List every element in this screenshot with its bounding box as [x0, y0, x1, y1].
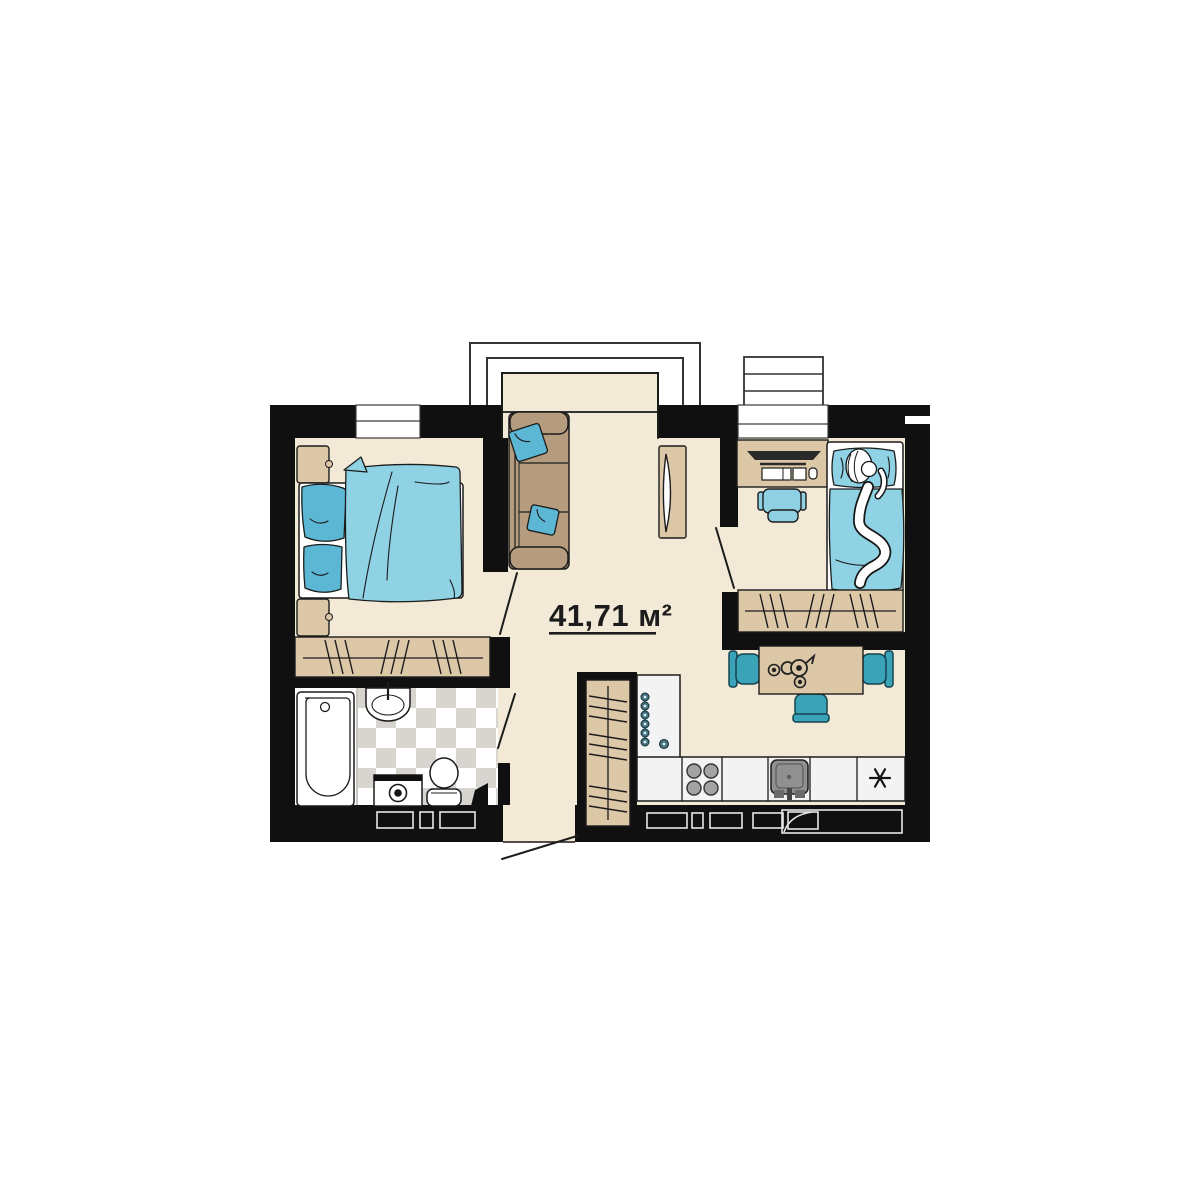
person-head: [862, 462, 877, 477]
washing-machine: [374, 775, 422, 806]
tv-unit: [659, 446, 686, 538]
balcony-door: [738, 405, 828, 438]
mouse: [809, 468, 817, 479]
balcony-slab: [905, 416, 930, 424]
floorplan-page: 41,71 м²: [0, 0, 1200, 1200]
bed-pillow: [302, 484, 347, 541]
keypad: [793, 468, 806, 480]
dining-chair-left: [729, 651, 760, 687]
desk: [737, 440, 828, 487]
bedroom-1: [295, 446, 490, 677]
wardrobe-bedroom2: [738, 590, 903, 632]
dining-chair-right: [862, 651, 893, 687]
monitor: [747, 451, 821, 460]
dining-chair-bottom: [793, 694, 829, 722]
bathroom: [295, 682, 498, 806]
bed-blanket: [345, 464, 462, 601]
single-bed: [827, 442, 904, 593]
area-label: 41,71 м²: [549, 598, 672, 633]
ladder-frame: [744, 357, 823, 408]
nightstand-knob: [326, 614, 333, 621]
sink-drainer: [774, 790, 784, 798]
wardrobe-bedroom1: [295, 637, 490, 677]
nightstand: [297, 446, 329, 483]
area-label-underline: [549, 632, 656, 635]
sink-drainer: [795, 790, 805, 798]
hall-closet: [586, 680, 630, 826]
sofa: [508, 412, 569, 569]
sink-faucet: [787, 788, 792, 800]
bathroom-sink: [366, 682, 410, 721]
bathtub-drain: [321, 703, 330, 712]
bathtub: [297, 692, 354, 806]
entry-floor: [503, 805, 575, 843]
floor-plan-image: 41,71 м²: [0, 0, 1200, 1200]
balcony-ladder: [744, 357, 823, 408]
nightstand: [297, 599, 329, 636]
nightstand-knob: [326, 461, 333, 468]
sofa-armrest: [510, 547, 568, 569]
kitchen-sink: [771, 760, 808, 800]
bed-pillow: [304, 545, 342, 593]
toilet: [427, 758, 461, 806]
keyboard: [762, 468, 791, 480]
area-label-group: 41,71 м²: [549, 598, 672, 635]
